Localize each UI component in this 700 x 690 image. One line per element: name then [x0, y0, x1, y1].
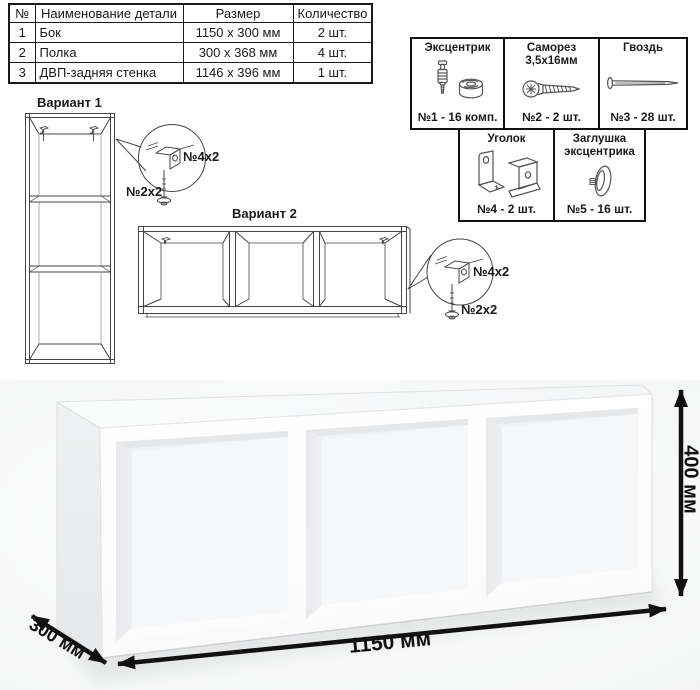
bracket-mark-icon: [162, 238, 388, 245]
hardware-label-line2: 3,5х16мм: [525, 55, 577, 68]
variant2-callout: [405, 237, 520, 332]
hardware-label: Заглушка: [564, 133, 635, 146]
shelf-compartment: [116, 431, 288, 642]
hardware-label: Гвоздь: [623, 42, 663, 55]
screw-icon: [505, 68, 598, 110]
part-qty: 4 шт.: [293, 43, 372, 63]
part-name: Полка: [35, 43, 183, 63]
shelf-compartment: [486, 408, 638, 597]
table-header-row: № Наименование детали Размер Количество: [9, 4, 372, 23]
hardware-item-eccentric: Эксцентрик №1 - 16 комп.: [410, 37, 505, 130]
part-name: ДВП-задняя стенка: [35, 63, 183, 84]
hardware-count: №1 - 16 комп.: [418, 110, 498, 128]
part-size: 300 x 368 мм: [183, 43, 293, 63]
part-num: 3: [9, 63, 35, 84]
header-size: Размер: [183, 4, 293, 23]
part-size: 1146 x 396 мм: [183, 63, 293, 84]
hardware-count: №5 - 16 шт.: [567, 202, 633, 220]
variant2-drawing: [137, 222, 413, 325]
header-qty: Количество: [293, 4, 372, 23]
hardware-label: Саморез: [525, 42, 577, 55]
variant1-callout: [112, 121, 242, 216]
cam-cap-icon: [555, 159, 644, 202]
hardware-item-nail: Гвоздь №3 - 28 шт.: [598, 37, 688, 130]
part-num: 1: [9, 23, 35, 43]
hardware-count: №3 - 28 шт.: [610, 110, 676, 128]
hardware-label: Эксцентрик: [424, 42, 490, 55]
variant1-drawing: [24, 112, 116, 365]
hardware-item-corner-bracket: Уголок №4 - 2 шт.: [458, 128, 555, 222]
screw-in-callout-icon: [446, 284, 459, 319]
variant2-title: Вариант 2: [232, 206, 297, 221]
part-name: Бок: [35, 23, 183, 43]
eccentric-bolt-and-cam-icon: [412, 55, 503, 110]
height-dimension-label: 400 мм: [679, 445, 700, 515]
table-row: 1 Бок 1150 x 300 мм 2 шт.: [9, 23, 372, 43]
variant1-screw-label: №2х2: [126, 184, 162, 199]
parts-table: № Наименование детали Размер Количество …: [8, 3, 373, 84]
variant1-title: Вариант 1: [37, 95, 102, 110]
part-qty: 2 шт.: [293, 23, 372, 43]
variant2-screw-label: №2х2: [461, 302, 497, 317]
header-name: Наименование детали: [35, 4, 183, 23]
hardware-label: Уголок: [487, 133, 525, 146]
nail-icon: [600, 55, 686, 110]
hardware-count: №4 - 2 шт.: [477, 202, 536, 220]
hardware-item-screw: Саморез3,5х16мм №2 - 2 шт.: [503, 37, 600, 130]
part-num: 2: [9, 43, 35, 63]
header-num: №: [9, 4, 35, 23]
shelf-compartment: [306, 419, 468, 619]
table-row: 3 ДВП-задняя стенка 1146 x 396 мм 1 шт.: [9, 63, 372, 84]
corner-bracket-icon: [460, 146, 553, 202]
part-qty: 1 шт.: [293, 63, 372, 84]
part-size: 1150 x 300 мм: [183, 23, 293, 43]
hardware-count: №2 - 2 шт.: [522, 110, 581, 128]
variant1-bracket-label: №4х2: [183, 149, 219, 164]
hardware-item-cam-cap: Заглушкаэксцентрика №5 - 16 шт.: [553, 128, 646, 222]
hardware-label-line2: эксцентрика: [564, 146, 635, 159]
table-row: 2 Полка 300 x 368 мм 4 шт.: [9, 43, 372, 63]
variant2-bracket-label: №4х2: [473, 264, 509, 279]
assembly-instruction-sheet: № Наименование детали Размер Количество …: [0, 0, 700, 690]
